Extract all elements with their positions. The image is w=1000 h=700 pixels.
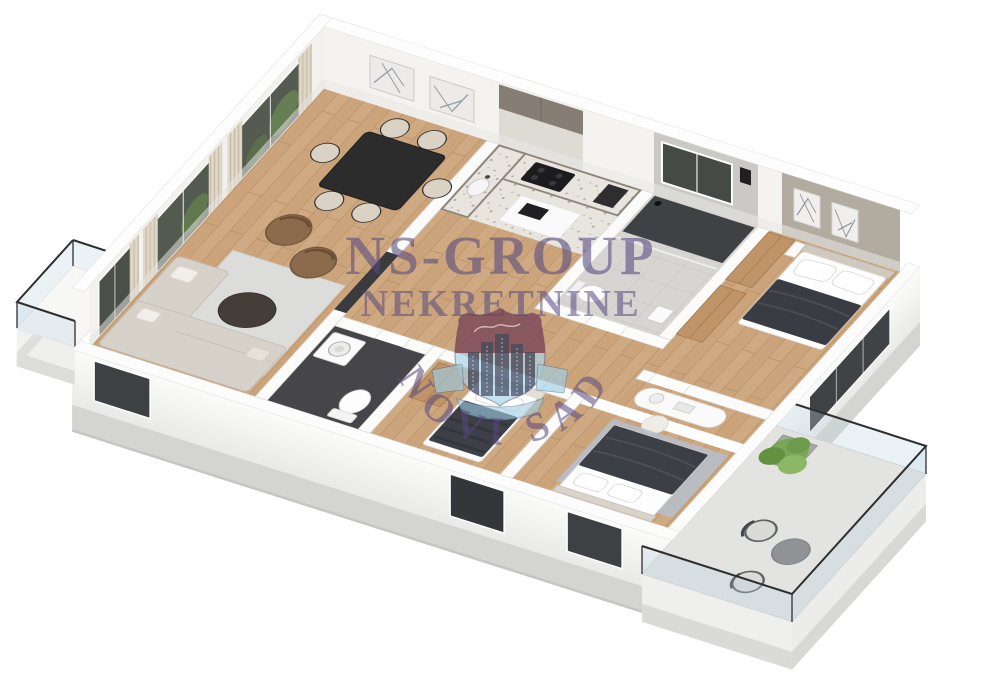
watermark-agency-name: NS-GROUP [345,225,656,286]
floor-plan-render: NS-GROUP NEKRETNINE [0,0,1000,700]
floor-plan-screenshot: NS-GROUP NEKRETNINE [0,0,1000,700]
